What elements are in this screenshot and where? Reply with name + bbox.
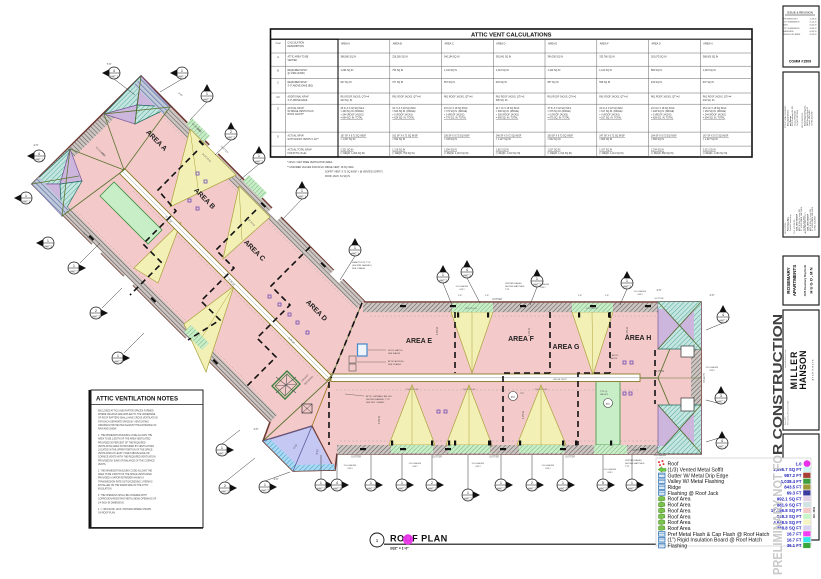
- svg-text:Flashing: Flashing: [668, 544, 688, 550]
- svg-text:ONLY: ONLY: [637, 294, 643, 296]
- svg-text:1: 1: [73, 264, 75, 268]
- svg-text:69.3 FT: 69.3 FT: [787, 491, 802, 496]
- svg-text:VENTILATING AREA IS PROVIDED B: VENTILATING AREA IS PROVIDED BY VENTILAT…: [98, 445, 154, 448]
- svg-text:3'-0" ABOVE EAVE: 3'-0" ABOVE EAVE: [288, 99, 308, 102]
- svg-text:AH7.2: AH7.2: [533, 282, 541, 286]
- svg-text:(> REQD. 1,210 SQ IN): (> REQD. 1,210 SQ IN): [496, 152, 521, 155]
- svg-text:AREA H: AREA H: [703, 43, 712, 46]
- svg-text:1. THE MINNESOTA BUILDING COD: 1. THE MINNESOTA BUILDING CODE ALLOWS TH…: [98, 434, 153, 437]
- svg-text:4.75:12: 4.75:12: [378, 415, 381, 424]
- svg-text:DS LEADER: DS LEADER: [634, 290, 647, 293]
- svg-text:= 628 SQ. IN. TOTAL: = 628 SQ. IN. TOTAL: [651, 117, 674, 120]
- svg-text:4: 4: [38, 152, 40, 156]
- svg-text:ISSUE FOR PERMIT: ISSUE FOR PERMIT: [784, 34, 802, 36]
- svg-text:363,041 SQ IN: 363,041 SQ IN: [496, 57, 512, 59]
- svg-text:2: 2: [230, 130, 232, 134]
- svg-text:ONLY: ONLY: [607, 472, 613, 474]
- svg-text:+ 0 (ROOF JACKS): + 0 (ROOF JACKS): [548, 113, 569, 116]
- svg-text:AH7.2: AH7.2: [559, 486, 567, 490]
- svg-text:+ 0 (ROOF JACKS): + 0 (ROOF JACKS): [392, 113, 413, 116]
- svg-text:AH7.2: AH7.2: [92, 314, 100, 318]
- svg-text:4: 4: [336, 481, 338, 485]
- svg-text:1: 1: [370, 481, 372, 485]
- svg-text:4.75:12: 4.75:12: [436, 326, 439, 335]
- svg-text:AREA E: AREA E: [548, 43, 557, 46]
- svg-text:= 675 SQ.IN. (RIDGE): = 675 SQ.IN. (RIDGE): [548, 111, 571, 113]
- svg-text:DRAFTSTOP, TYP.: DRAFTSTOP, TYP.: [352, 261, 371, 264]
- svg-text:1: 1: [181, 69, 183, 73]
- svg-text:HANSON: HANSON: [798, 350, 808, 389]
- svg-text:= 390 SQ.IN. (RIDGE): = 390 SQ.IN. (RIDGE): [496, 111, 519, 113]
- svg-text:W/ RIDGE VENTS PLUS: W/ RIDGE VENTS PLUS: [288, 111, 314, 113]
- svg-text:PROGRESS SET: PROGRESS SET: [784, 19, 799, 21]
- svg-text:AH7.1: AH7.1: [218, 451, 226, 455]
- svg-text:TYP.: TYP.: [625, 466, 630, 468]
- svg-text:REQUIRED NFVA*: REQUIRED NFVA*: [288, 69, 308, 72]
- svg-text:DS LEADER: DS LEADER: [344, 464, 357, 467]
- svg-text:RIDGE VENT: RIDGE VENT: [553, 379, 567, 381]
- svg-text:SEE DET. 10/A641: SEE DET. 10/A641: [366, 401, 385, 404]
- svg-text:306 SQ. IN.: 306 SQ. IN.: [496, 100, 509, 102]
- svg-text:GUTTER: GUTTER: [489, 456, 499, 459]
- svg-text:ONLY: ONLY: [709, 370, 715, 372]
- svg-text:GUTTER: GUTTER: [492, 298, 502, 301]
- svg-text:ENCLOSED ATTICS AND RAFTER SPA: ENCLOSED ATTICS AND RAFTER SPACES FORMED: [98, 410, 154, 413]
- svg-text:1: 1: [264, 483, 266, 487]
- svg-text:1,314 SQ IN: 1,314 SQ IN: [548, 70, 561, 72]
- svg-text:PROVIDED 50 PERCENT OF THE REQ: PROVIDED 50 PERCENT OF THE REQUIRED: [98, 442, 146, 444]
- svg-text:(SHOWN DASHED): (SHOWN DASHED): [352, 264, 372, 267]
- svg-text:AH7.1: AH7.1: [719, 318, 727, 322]
- svg-text:1: 1: [25, 194, 27, 198]
- svg-text:AH7.2: AH7.2: [439, 278, 447, 282]
- svg-text:A641: A641: [606, 403, 610, 406]
- svg-text:SOFFIT VENT: 9.72 SQ IN/SF +: SOFFIT VENT: 9.72 SQ IN/SF + (B VENTED S…: [325, 171, 383, 174]
- svg-text:FOR EACH SEPARATE SPACE BY VEN: FOR EACH SEPARATE SPACE BY VENTILATING: [98, 420, 149, 423]
- svg-text:ATTIC ACCESS: ATTIC ACCESS: [388, 360, 404, 363]
- svg-text:AH7.2: AH7.2: [44, 244, 52, 248]
- svg-text:SHOWN HATCHED: SHOWN HATCHED: [625, 462, 645, 465]
- svg-text:DS LEADER: DS LEADER: [542, 464, 555, 467]
- svg-text:1.5:12 1.5:12: 1.5:12 1.5:12: [463, 389, 477, 391]
- svg-text:4.75:12: 4.75:12: [528, 327, 531, 336]
- svg-text:www.millerhanson.com: www.millerhanson.com: [785, 349, 787, 368]
- svg-text:1/4 INCH IN DIMENSION.: 1/4 INCH IN DIMENSION.: [98, 502, 125, 504]
- svg-text:AH7.1: AH7.1: [22, 199, 30, 203]
- svg-text:333,766 SQ IN: 333,766 SQ IN: [599, 57, 615, 59]
- svg-text:CITY SUBMISSION: CITY SUBMISSION: [784, 22, 801, 24]
- svg-text:4: 4: [722, 313, 724, 317]
- svg-text:Limited Partnership: Limited Partnership: [789, 215, 792, 231]
- svg-text:1,134 SQ IN: 1,134 SQ IN: [444, 70, 457, 72]
- svg-text:= 592 SQ IN: = 592 SQ IN: [392, 139, 405, 141]
- svg-text:AH7.1: AH7.1: [298, 194, 306, 198]
- svg-text:AH7.2: AH7.2: [317, 486, 325, 490]
- svg-text:SHOWN DASHED, TYP.: SHOWN DASHED, TYP.: [366, 398, 390, 401]
- svg-text:AH7.2: AH7.2: [528, 486, 536, 490]
- svg-text:AH7.2: AH7.2: [497, 486, 505, 490]
- svg-text:3. THE OPENINGS SHALL BE COVE: 3. THE OPENINGS SHALL BE COVERED WITH: [98, 494, 147, 497]
- svg-text:647 SQ IN: 647 SQ IN: [703, 82, 714, 84]
- svg-text:340,194 SQ IN: 340,194 SQ IN: [444, 57, 460, 59]
- svg-text:(> REQD. 869 SQ IN): (> REQD. 869 SQ IN): [651, 152, 674, 155]
- svg-text:21.7 LF X 18 SQ IN/LF: 21.7 LF X 18 SQ IN/LF: [496, 108, 520, 110]
- svg-text:843.5 FT: 843.5 FT: [784, 485, 802, 490]
- svg-text:R CONSTRUCTION: R CONSTRUCTION: [770, 314, 785, 455]
- svg-text:4.75:12: 4.75:12: [626, 326, 629, 335]
- svg-text:AREA F: AREA F: [600, 43, 609, 46]
- svg-text:388,000 SQ IN: 388,000 SQ IN: [703, 57, 719, 59]
- svg-text:1: 1: [536, 277, 538, 281]
- svg-text:GUTTER: GUTTER: [432, 456, 442, 459]
- svg-text:= 617 SQ. IN. TOTAL: = 617 SQ. IN. TOTAL: [599, 117, 622, 120]
- svg-text:AH7.2: AH7.2: [203, 97, 211, 101]
- svg-text:AH7.2: AH7.2: [428, 486, 436, 490]
- svg-text:DS LEADER: DS LEADER: [706, 366, 719, 369]
- svg-text:1: 1: [206, 92, 208, 96]
- svg-text:= 438 SQ.IN. (RIDGE): = 438 SQ.IN. (RIDGE): [651, 111, 674, 113]
- svg-text:COMM #1509: COMM #1509: [789, 60, 811, 64]
- svg-text:= 776 SQ.IN. (RIDGE): = 776 SQ.IN. (RIDGE): [444, 111, 467, 113]
- svg-text:DESCRIPTION: DESCRIPTION: [288, 45, 305, 48]
- svg-text:43.6 LF X 18 SQ IN/LF: 43.6 LF X 18 SQ IN/LF: [444, 108, 468, 110]
- svg-text:ADDITIONAL NFVA*: ADDITIONAL NFVA*: [288, 96, 310, 99]
- svg-text:AREA C: AREA C: [445, 43, 454, 46]
- svg-text:ROSEMARY: ROSEMARY: [786, 267, 791, 293]
- svg-text:1: 1: [500, 481, 502, 485]
- svg-text:244 SQ. IN.: 244 SQ. IN.: [341, 100, 354, 102]
- svg-text:PRELIMINARY NOT FO: PRELIMINARY NOT FO: [770, 455, 785, 575]
- svg-text:H U G O , M N: H U G O , M N: [809, 267, 814, 293]
- svg-text:4635 Rosemary Way North: 4635 Rosemary Way North: [804, 264, 807, 296]
- svg-text:DS LEADER: DS LEADER: [456, 285, 469, 288]
- svg-text:TYP: TYP: [520, 393, 525, 395]
- svg-text:* NFVA = NET FREE VENTILATI: * NFVA = NET FREE VENTILATION AREA: [287, 161, 333, 164]
- svg-text:1: 1: [376, 538, 379, 543]
- svg-text:1: 1: [562, 481, 564, 485]
- svg-text:2'-6": 2'-6": [254, 428, 259, 431]
- svg-text:CORROSION-RESISTANT METAL MESH: CORROSION-RESISTANT METAL MESH OPENINGS …: [98, 498, 157, 501]
- svg-text:R61 ROOF JACKS, QTY=0: R61 ROOF JACKS, QTY=0: [599, 96, 628, 99]
- svg-text:633 SQ IN: 633 SQ IN: [496, 82, 507, 84]
- svg-text:= 800 SQ IN: = 800 SQ IN: [599, 139, 612, 141]
- svg-text:+ 244 (ROOF JACKS): + 244 (ROOF JACKS): [341, 113, 364, 116]
- svg-text:AH7.1: AH7.1: [718, 444, 726, 448]
- svg-text:= 1,127 SQ IN: = 1,127 SQ IN: [496, 139, 511, 141]
- svg-text:4.75:12: 4.75:12: [522, 410, 525, 419]
- svg-text:INSTALLED ON THE WARM SIDE OF: INSTALLED ON THE WARM SIDE OF THE ATTIC: [98, 484, 149, 487]
- svg-text:5: 5: [602, 481, 604, 485]
- svg-text:4.75:12: 4.75:12: [656, 370, 665, 373]
- svg-text:** ASSUMED VALUES FOR NFVA:: ** ASSUMED VALUES FOR NFVA: RIDGE VENT: …: [287, 166, 355, 169]
- svg-text:AH7.2: AH7.2: [599, 486, 607, 490]
- svg-text:ACTUAL NFVA*: ACTUAL NFVA*: [288, 135, 305, 138]
- svg-text:= 450 SQ.IN. (RIDGE): = 450 SQ.IN. (RIDGE): [703, 111, 726, 113]
- svg-text:+ 244 (ROOF JACKS): + 244 (ROOF JACKS): [703, 113, 726, 116]
- svg-text:= 596 SQ IN: = 596 SQ IN: [651, 139, 664, 141]
- svg-text:02.04.19: 02.04.19: [810, 25, 817, 27]
- svg-text:AH7.2: AH7.2: [398, 486, 406, 490]
- svg-text:= 694 SQ. IN. TOTAL: = 694 SQ. IN. TOTAL: [703, 117, 726, 120]
- svg-text:2: 2: [95, 309, 97, 313]
- svg-text:PROVIDED BY EAVE OR BALANCE OF: PROVIDED BY EAVE OR BALANCE OF THE CORNI…: [98, 459, 155, 462]
- svg-text:1,112 SQ IN: 1,112 SQ IN: [599, 70, 612, 72]
- svg-text:1'-6": 1'-6": [578, 295, 583, 297]
- svg-text:2 ROOF: 2 ROOF: [610, 355, 619, 357]
- svg-text:ACTUAL TOTAL NFVA*: ACTUAL TOTAL NFVA*: [288, 149, 313, 152]
- svg-text:ONLY: ONLY: [545, 468, 551, 470]
- svg-text:REQUIRED NFVA*: REQUIRED NFVA*: [288, 81, 308, 84]
- svg-text:2: 2: [224, 484, 226, 488]
- svg-text:7'-6": 7'-6": [107, 63, 112, 66]
- svg-text:Tel (507) 367-9050: Tel (507) 367-9050: [797, 110, 799, 126]
- svg-text:= 450 SQ.IN. (RIDGE): = 450 SQ.IN. (RIDGE): [341, 111, 364, 113]
- svg-text:a r c h i t e c t s: a r c h i t e c t s: [811, 359, 815, 380]
- svg-text:R61 ROOF JACKS, QTY=0: R61 ROOF JACKS, QTY=0: [444, 96, 473, 99]
- svg-text:= 624 SQ. IN. TOTAL: = 624 SQ. IN. TOTAL: [392, 117, 415, 120]
- svg-text:1: 1: [301, 189, 303, 193]
- svg-text:AREA B: AREA B: [393, 43, 402, 46]
- svg-text:556 SQ IN: 556 SQ IN: [599, 82, 610, 84]
- svg-text:= 1,627 SQ IN: = 1,627 SQ IN: [703, 139, 718, 141]
- svg-text:VENTED: VENTED: [288, 60, 298, 62]
- svg-text:INSULATION.: INSULATION.: [98, 488, 112, 491]
- svg-text:3: 3: [720, 394, 722, 398]
- svg-text:AH7.2: AH7.2: [255, 159, 263, 163]
- svg-text:SHOWN HATCHED: SHOWN HATCHED: [505, 285, 525, 288]
- svg-text:25.0 LF X 18 SQ IN/LF: 25.0 LF X 18 SQ IN/LF: [703, 108, 727, 110]
- svg-text:R61 ROOF JACKS, QTY=4: R61 ROOF JACKS, QTY=4: [341, 96, 370, 99]
- svg-text:01.14.19: 01.14.19: [810, 22, 817, 24]
- svg-text:1.0: 1.0: [796, 461, 803, 466]
- svg-text:AREA G: AREA G: [652, 43, 661, 46]
- svg-text:16:12 16:12: 16:12 16:12: [465, 308, 477, 310]
- svg-text:4: 4: [113, 69, 115, 73]
- svg-text:(> REQD. 1,134 SQ IN): (> REQD. 1,134 SQ IN): [444, 152, 469, 155]
- svg-text:ON ROOF PLAN.: ON ROOF PLAN.: [98, 512, 116, 515]
- svg-text:AH7.2: AH7.2: [221, 489, 229, 493]
- svg-text:1,210 SQ IN: 1,210 SQ IN: [496, 70, 509, 72]
- svg-text:ONLY: ONLY: [459, 289, 465, 291]
- svg-text:2: 2: [531, 481, 533, 485]
- svg-text:1: 1: [47, 239, 49, 243]
- svg-text:Minneapolis, Minnesota 55401: Minneapolis, Minnesota 55401: [786, 401, 789, 425]
- svg-text:= 617 SQ.IN. (RIDGE): = 617 SQ.IN. (RIDGE): [599, 111, 622, 113]
- svg-text:647 SQ IN: 647 SQ IN: [341, 82, 352, 84]
- svg-text:GUTTER: GUTTER: [632, 449, 642, 452]
- svg-text:ROOF HATCH: ROOF HATCH: [388, 349, 403, 352]
- svg-text:= 624 SQ.IN. (RIDGE): = 624 SQ.IN. (RIDGE): [392, 111, 415, 113]
- svg-text:987.2 FT: 987.2 FT: [784, 473, 802, 478]
- svg-text:869 SQ IN: 869 SQ IN: [651, 70, 662, 72]
- svg-text:2'-6": 2'-6": [657, 289, 662, 292]
- svg-text:1: 1: [626, 279, 628, 283]
- svg-text:05.24.19: 05.24.19: [810, 34, 817, 36]
- svg-text:2. THE MINNESOTA BUILDING COD: 2. THE MINNESOTA BUILDING CODE ALLOWS TH…: [98, 470, 153, 473]
- svg-text:ONLY: ONLY: [347, 468, 353, 470]
- svg-text:R61 ROOF JACKS, QTY=5: R61 ROOF JACKS, QTY=5: [496, 96, 525, 99]
- svg-text:2: 2: [431, 481, 433, 485]
- svg-text:4: 4: [466, 268, 468, 272]
- svg-text:VENTED EAVES: VENTED EAVES: [505, 282, 522, 285]
- svg-text:ROOF JACK: 61 SQ IN: ROOF JACK: 61 SQ IN: [325, 175, 350, 178]
- svg-text:VENTILATED AT LEAST 3 FEET ABO: VENTILATED AT LEAST 3 FEET ABOVE EAVE OR: [98, 452, 150, 455]
- svg-text:PROVIDED A VAPOR RETARDER HAVI: PROVIDED A VAPOR RETARDER HAVING A: [98, 477, 144, 480]
- svg-text:388,000 SQ IN: 388,000 SQ IN: [341, 57, 357, 59]
- svg-text:BA REVIEW: BA REVIEW: [784, 30, 794, 33]
- svg-text:VENTS.: VENTS.: [98, 464, 107, 466]
- svg-text:2'-6": 2'-6": [710, 294, 715, 297]
- svg-text:1: 1: [117, 354, 119, 358]
- svg-text:2'-6": 2'-6": [34, 144, 39, 147]
- svg-text:VALLEY: VALLEY: [600, 393, 609, 396]
- svg-text:ONLY: ONLY: [475, 466, 481, 468]
- svg-text:AH7.2: AH7.2: [623, 284, 631, 288]
- svg-text:1: 1: [354, 246, 356, 250]
- svg-text:04.26.19: 04.26.19: [810, 31, 817, 33]
- svg-text:394,330 SQ IN: 394,330 SQ IN: [548, 57, 564, 59]
- svg-text:TRANSMISSION RATE NOT EXCEEDIN: TRANSMISSION RATE NOT EXCEEDING 1 PERM I…: [98, 480, 153, 483]
- svg-text:ATTIC VENTILATION NOTES: ATTIC VENTILATION NOTES: [96, 396, 178, 403]
- svg-text:DS LEADER: DS LEADER: [409, 462, 422, 465]
- svg-text:1: 1: [631, 481, 633, 485]
- svg-text:AH7.2: AH7.2: [114, 359, 122, 363]
- svg-text:16.7 FT: 16.7 FT: [787, 532, 802, 537]
- svg-text:ROOF JACKS**: ROOF JACKS**: [288, 113, 305, 116]
- svg-text:+ 0 (ROOF JACKS): + 0 (ROOF JACKS): [599, 113, 620, 116]
- svg-text:JACKS: JACKS: [610, 357, 618, 360]
- svg-text:1.5:12 1.5:12: 1.5:12 1.5:12: [406, 389, 420, 391]
- svg-text:ISSUE & REVISION: ISSUE & REVISION: [787, 11, 813, 15]
- svg-text:AH7.1: AH7.1: [717, 399, 725, 403]
- svg-text:= 675 SQ. IN. TOTAL: = 675 SQ. IN. TOTAL: [548, 117, 571, 120]
- svg-text:+ 0 (ROOF JACKS): + 0 (ROOF JACKS): [651, 113, 672, 116]
- svg-text:OF ROOF RAFTERS SHALL HAVE CRO: OF ROOF RAFTERS SHALL HAVE CROSS VENTILA…: [98, 417, 158, 420]
- svg-text:AH7.1: AH7.1: [110, 74, 118, 78]
- svg-text:AREA E: AREA E: [406, 338, 433, 345]
- svg-text:3/32" = 1'-0": 3/32" = 1'-0": [390, 547, 409, 551]
- svg-text:R61 ROOF JACKS, QTY=0: R61 ROOF JACKS, QTY=0: [548, 96, 577, 99]
- svg-text:A640: A640: [511, 396, 515, 399]
- svg-text:2'-6": 2'-6": [274, 478, 279, 481]
- svg-text:AH7.1: AH7.1: [351, 251, 359, 255]
- svg-text:+ 305 (ROOF JACKS): + 305 (ROOF JACKS): [496, 113, 519, 116]
- svg-text:36.1 FT: 36.1 FT: [787, 543, 802, 548]
- svg-text:1: 1: [401, 481, 403, 485]
- svg-text:1.5:12 1.5:12: 1.5:12 1.5:12: [535, 389, 549, 391]
- svg-text:AH7.2: AH7.2: [367, 486, 375, 490]
- svg-text:ONLY: ONLY: [412, 466, 418, 468]
- svg-text:ITEM: ITEM: [275, 43, 280, 45]
- svg-text:ATTIC VENT CALCULATIONS: ATTIC VENT CALCULATIONS: [471, 33, 552, 39]
- svg-text:377 SQ IN: 377 SQ IN: [392, 82, 403, 84]
- svg-text:263,075 SQ IN: 263,075 SQ IN: [651, 57, 667, 59]
- svg-text:3'-0" ABOVE EAVE (B/2): 3'-0" ABOVE EAVE (B/2): [288, 84, 314, 87]
- svg-text:37.5 LF X 18 SQ IN/LF: 37.5 LF X 18 SQ IN/LF: [548, 108, 572, 110]
- svg-text:34.7 LF X 18 SQ IN/LF: 34.7 LF X 18 SQ IN/LF: [392, 108, 416, 110]
- svg-text:AH7.2: AH7.2: [463, 273, 471, 277]
- svg-text:16:12 16:12: 16:12 16:12: [586, 308, 598, 310]
- svg-text:AH7.1: AH7.1: [178, 74, 186, 78]
- svg-text:11.08.16: 11.08.16: [810, 19, 817, 21]
- svg-text:226,265 SQ IN: 226,265 SQ IN: [392, 57, 408, 59]
- svg-text:AREA G: AREA G: [553, 344, 581, 351]
- svg-text:AREA D: AREA D: [496, 43, 505, 46]
- svg-text:SEE 11/A650: SEE 11/A650: [388, 363, 402, 366]
- svg-text:4. □ =R61 ROOF JACK. PROVID: 4. □ =R61 ROOF JACK. PROVIDE WHERE SHOWN: [98, 508, 151, 511]
- svg-text:1'-6": 1'-6": [485, 295, 490, 297]
- svg-text:GUTTER: GUTTER: [702, 373, 705, 383]
- svg-text:ROOF PLAN: ROOF PLAN: [390, 534, 448, 544]
- svg-text:WITH SOFFIT VENTS X 1/2**: WITH SOFFIT VENTS X 1/2**: [288, 139, 319, 141]
- svg-text:6:12: 6:12: [315, 449, 319, 455]
- svg-text:434 SQ IN: 434 SQ IN: [651, 82, 662, 84]
- svg-text:1: 1: [258, 154, 260, 158]
- svg-text:CITY SUBMISSION: CITY SUBMISSION: [784, 28, 801, 30]
- svg-text:WHERE CEILINGS ARE APPLIED TO: WHERE CEILINGS ARE APPLIED TO THE UNDERS…: [98, 413, 156, 416]
- svg-text:Tel 763.585.6742: Tel 763.585.6742: [812, 111, 814, 126]
- svg-text:1,294 SQ IN: 1,294 SQ IN: [341, 70, 354, 72]
- svg-text:GUTTER: GUTTER: [565, 456, 575, 459]
- svg-text:AREA H: AREA H: [625, 335, 652, 342]
- svg-text:1: 1: [442, 273, 444, 277]
- svg-text:DS LEADER: DS LEADER: [604, 468, 617, 471]
- svg-text:AREA TO BE 1/300TH OF THE AREA: AREA TO BE 1/300TH OF THE AREA VENTILATE…: [98, 438, 151, 441]
- svg-text:1'-6": 1'-6": [605, 295, 610, 297]
- svg-text:AREA F: AREA F: [508, 336, 535, 343]
- svg-text:OPENINGS PROTECTED AGAINST THE: OPENINGS PROTECTED AGAINST THE ENTRANCE …: [98, 424, 157, 427]
- svg-text:NO. 1509: NO. 1509: [812, 506, 816, 518]
- svg-text:DS LEADER: DS LEADER: [654, 454, 667, 457]
- svg-text:567 SQ IN: 567 SQ IN: [444, 82, 455, 84]
- svg-text:AH7.2: AH7.2: [333, 486, 341, 490]
- svg-text:657 SQ IN: 657 SQ IN: [548, 82, 559, 84]
- svg-text:CORNICE VENTS WITH THE REQUIRE: CORNICE VENTS WITH THE REQUIRED VENTILAT…: [98, 456, 156, 459]
- svg-text:34.3 LF X 18 SQ IN/LF: 34.3 LF X 18 SQ IN/LF: [599, 108, 623, 110]
- svg-text:TYP. @: TYP. @: [600, 391, 608, 393]
- svg-text:RAIN AND SNOW.: RAIN AND SNOW.: [98, 428, 117, 431]
- svg-text:Tel 952-250-2003: Tel 952-250-2003: [815, 216, 817, 231]
- svg-text:D: D: [277, 107, 279, 110]
- svg-text:4: 4: [721, 439, 723, 443]
- svg-text:(> REQD. 1,294 SQ IN): (> REQD. 1,294 SQ IN): [341, 152, 366, 155]
- svg-text:= 695 SQ. IN. TOTAL: = 695 SQ. IN. TOTAL: [496, 117, 519, 120]
- svg-text:(> REQD. 1,314 SQ IN): (> REQD. 1,314 SQ IN): [548, 152, 573, 155]
- svg-text:AH7.2: AH7.2: [70, 269, 78, 273]
- svg-text:1,294 SQ IN: 1,294 SQ IN: [703, 70, 716, 72]
- svg-text:SEE 14/A640: SEE 14/A640: [352, 267, 366, 270]
- svg-text:GUTTER: GUTTER: [655, 298, 664, 300]
- svg-text:+ 0 (ROOF JACKS): + 0 (ROOF JACKS): [444, 113, 465, 116]
- svg-text:= 728 SQ IN: = 728 SQ IN: [444, 139, 457, 141]
- svg-text:03.08.19: 03.08.19: [810, 28, 817, 30]
- svg-text:LOCATED IN THE UPPER PORTION O: LOCATED IN THE UPPER PORTION OF THE SPAC…: [98, 449, 153, 452]
- svg-text:FOR ATTIC (D+E): FOR ATTIC (D+E): [288, 152, 307, 155]
- svg-text:ATTIC AREA TO BE: ATTIC AREA TO BE: [288, 56, 309, 59]
- svg-text:AREA TO BE 1/300TH OF THE SPAC: AREA TO BE 1/300TH OF THE SPACE VENTILAT…: [98, 473, 152, 476]
- svg-text:C: C: [277, 82, 279, 85]
- svg-text:1: 1: [221, 446, 223, 450]
- svg-text:1: 1: [320, 481, 322, 485]
- svg-text:VENTED EAVES: VENTED EAVES: [625, 459, 642, 462]
- svg-text:AH7.2: AH7.2: [628, 486, 636, 490]
- svg-text:AREA A: AREA A: [341, 43, 350, 46]
- svg-text:ACTUAL NFVA*: ACTUAL NFVA*: [288, 107, 305, 110]
- svg-text:(> REQD. 754 SQ IN): (> REQD. 754 SQ IN): [392, 152, 415, 155]
- svg-text:754 SQ IN: 754 SQ IN: [392, 70, 403, 72]
- svg-text:25.3 LF X 18 SQ IN/LF: 25.3 LF X 18 SQ IN/LF: [341, 108, 365, 110]
- svg-text:244 SQ. IN.: 244 SQ. IN.: [703, 100, 716, 102]
